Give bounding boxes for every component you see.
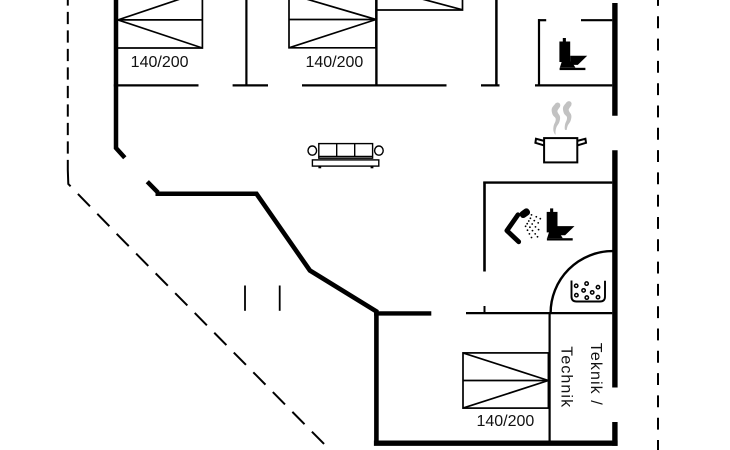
svg-text:140/200: 140/200 xyxy=(305,54,363,71)
svg-text:Technik: Technik xyxy=(557,346,574,408)
svg-text:Teknik /: Teknik / xyxy=(587,343,604,406)
svg-text:140/200: 140/200 xyxy=(131,54,189,71)
svg-text:140/200: 140/200 xyxy=(476,413,534,430)
